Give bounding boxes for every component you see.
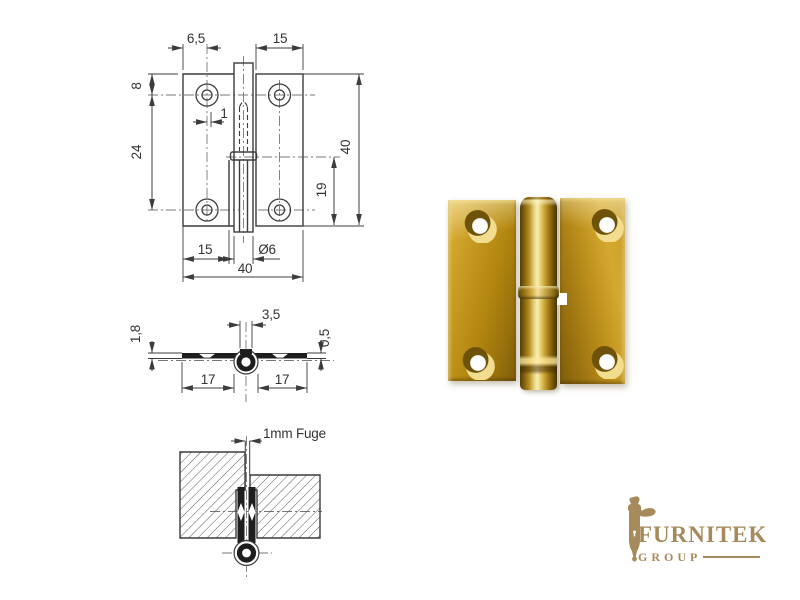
furnitek-logo: FURNITEK GROUP <box>622 496 797 568</box>
section-view: 3,5 1,8 0,5 17 17 <box>128 307 334 402</box>
dim-label-17-right: 17 <box>275 372 290 387</box>
dim-label-1-8: 1,8 <box>128 325 143 343</box>
dim-label-6-5: 6,5 <box>187 31 205 46</box>
dim-label-15-top: 15 <box>273 31 288 46</box>
logo-text: FURNITEK GROUP <box>638 522 760 565</box>
dim-label-15-bottom: 15 <box>198 242 213 257</box>
dim-label-3-5: 3,5 <box>262 307 280 322</box>
detail-view: 1mm Fuge <box>180 426 326 580</box>
dim-label-0-5: 0,5 <box>317 329 332 347</box>
hinge-photo <box>448 197 626 391</box>
dim-label-19: 19 <box>314 183 329 198</box>
front-view: 6,5 15 8 24 1 40 19 15 Ø6 40 <box>129 31 364 282</box>
dim-label-24: 24 <box>129 144 144 159</box>
section-bar <box>182 349 307 374</box>
logo-group-label: GROUP <box>638 550 701 565</box>
logo-subtitle-row: GROUP <box>638 550 760 565</box>
dim-label-fuge: 1mm Fuge <box>263 426 326 441</box>
hinge-outline <box>183 63 303 232</box>
dim-label-40-right: 40 <box>338 140 353 155</box>
hinge-leaf-left <box>448 200 516 381</box>
logo-name: FURNITEK <box>638 522 760 548</box>
hidden-pin-lines <box>240 102 248 151</box>
hinge-leaf-right <box>560 198 625 384</box>
dim-label-1: 1 <box>220 106 227 121</box>
screw-hole <box>590 208 624 242</box>
screw-hole <box>463 209 497 243</box>
hinge-collar <box>518 286 559 299</box>
screw-hole <box>590 345 624 379</box>
screw-hole <box>461 346 495 380</box>
dim-label-8: 8 <box>129 82 144 89</box>
logo-rule <box>703 556 760 558</box>
panel-right <box>250 475 320 538</box>
panel-left <box>180 452 245 538</box>
dim-label-d6: Ø6 <box>258 242 276 257</box>
dim-label-17-left: 17 <box>201 372 216 387</box>
dim-label-40-bottom: 40 <box>238 261 253 276</box>
gap-lines <box>245 441 249 490</box>
